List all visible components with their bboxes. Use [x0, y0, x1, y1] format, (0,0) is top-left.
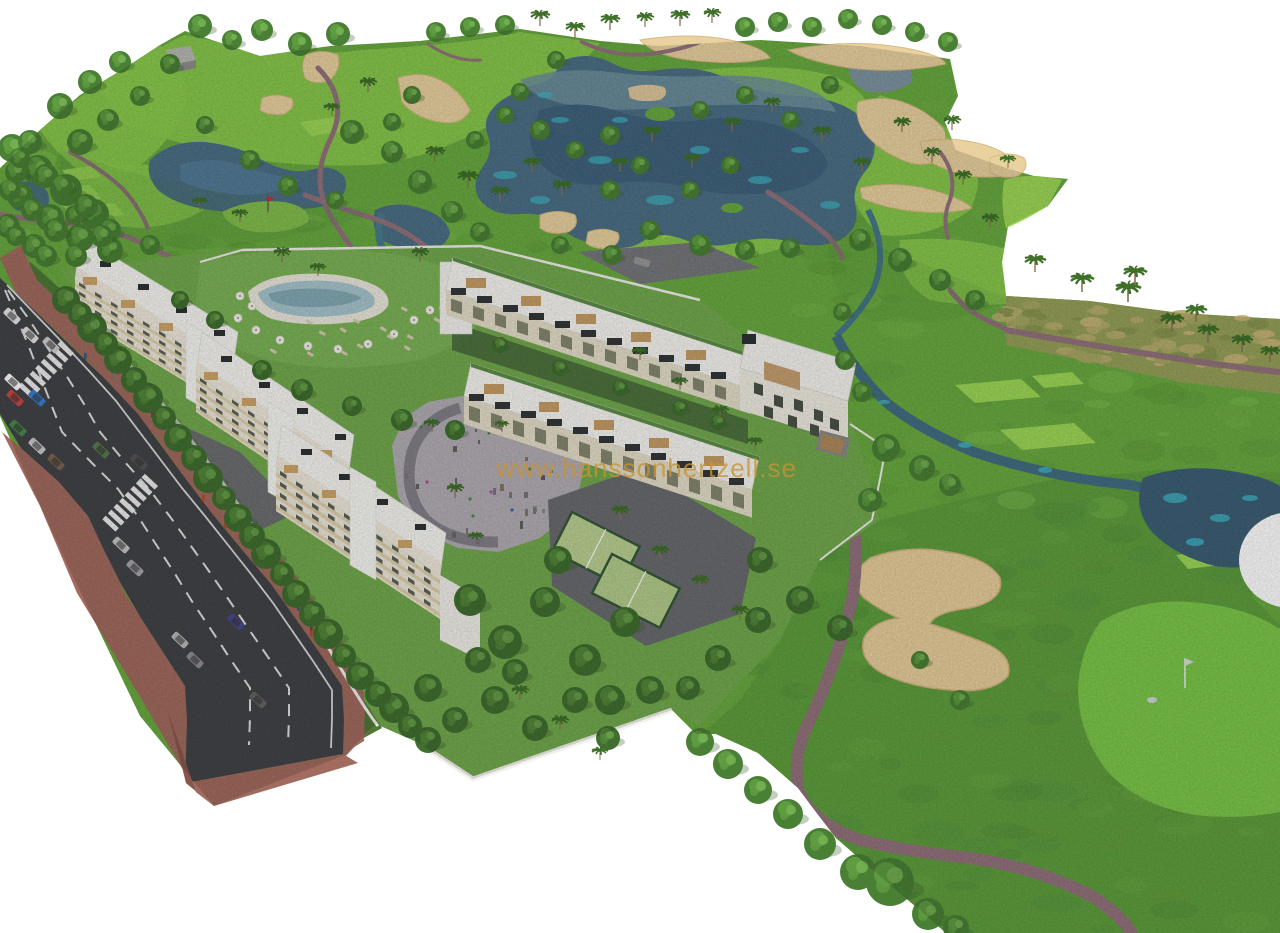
svg-text:www.hanssonhertzell.se: www.hanssonhertzell.se	[495, 453, 797, 483]
